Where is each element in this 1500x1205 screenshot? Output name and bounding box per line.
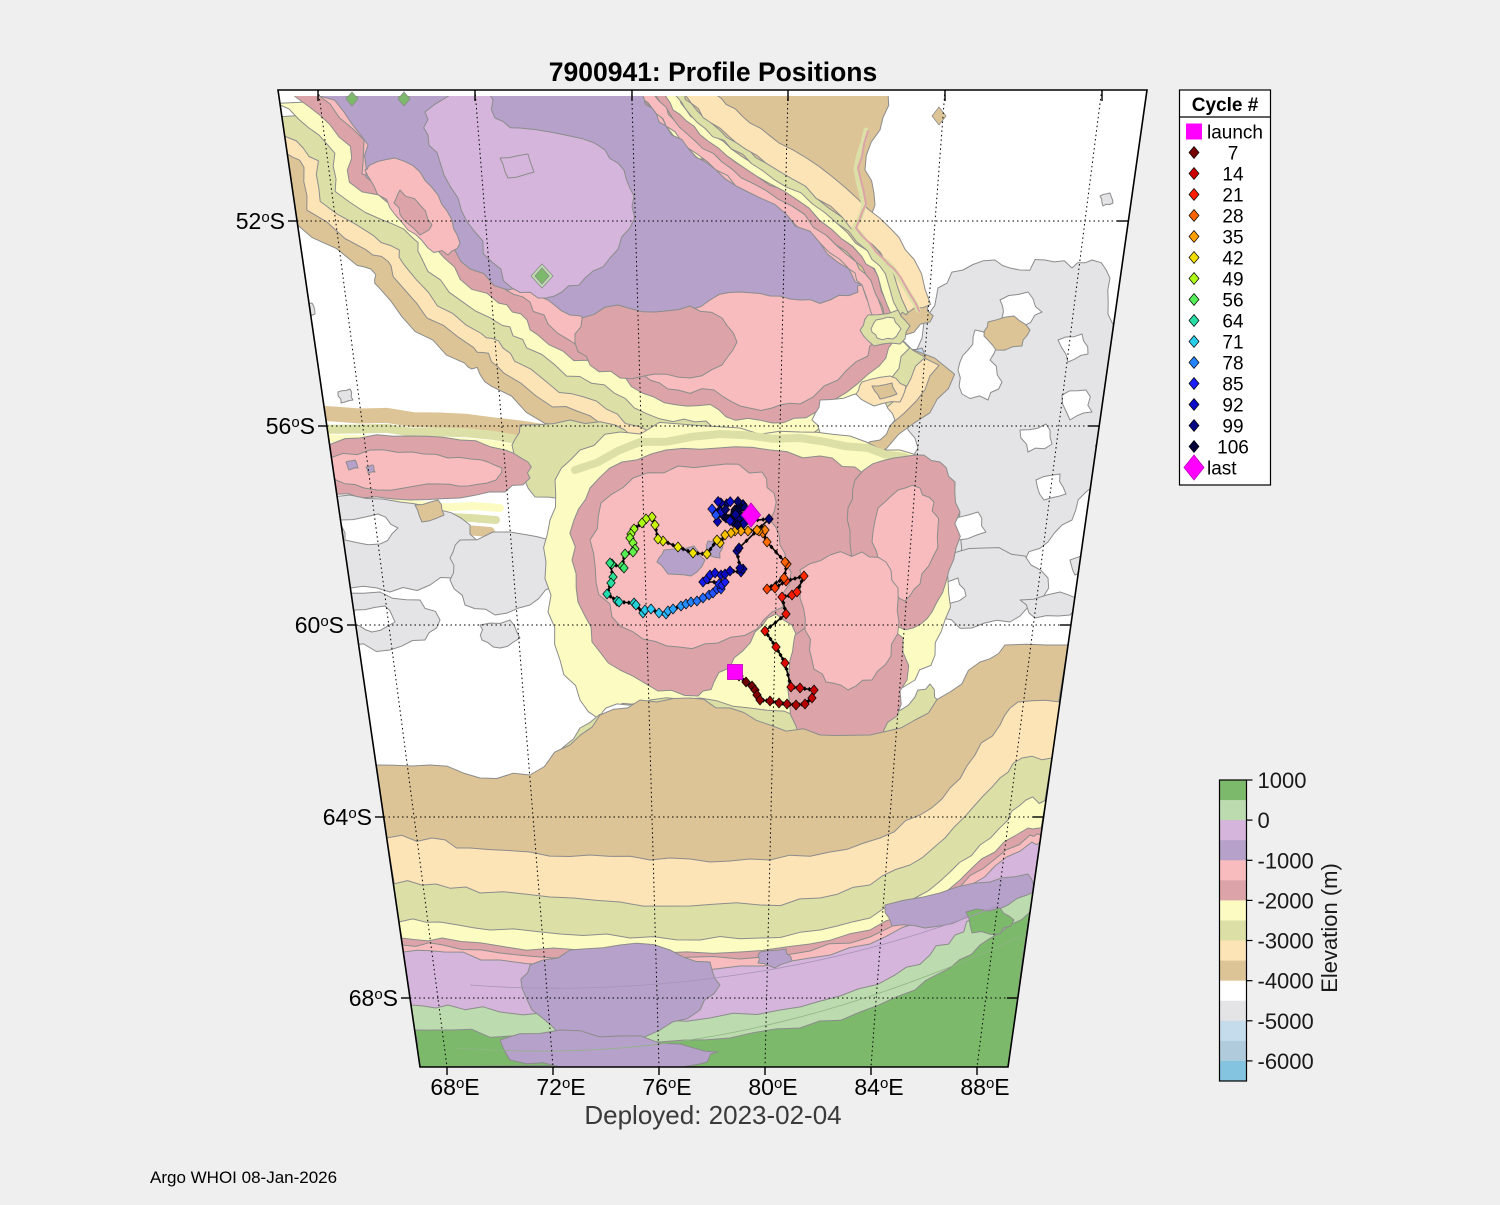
svg-text:88oE: 88oE (960, 1074, 1009, 1100)
svg-text:28: 28 (1222, 207, 1243, 228)
svg-text:Elevation (m): Elevation (m) (1317, 863, 1342, 993)
svg-text:7: 7 (1228, 144, 1239, 165)
svg-text:Deployed: 2023-02-04: Deployed: 2023-02-04 (584, 1100, 841, 1130)
svg-text:64: 64 (1222, 312, 1244, 333)
svg-text:84oE: 84oE (854, 1074, 903, 1100)
svg-text:21: 21 (1222, 186, 1243, 207)
svg-text:-4000: -4000 (1258, 969, 1314, 994)
svg-text:-6000: -6000 (1258, 1049, 1314, 1074)
svg-text:85: 85 (1222, 375, 1243, 396)
svg-text:80oE: 80oE (748, 1074, 797, 1100)
svg-text:76oE: 76oE (642, 1074, 691, 1100)
svg-text:60oS: 60oS (295, 612, 344, 638)
svg-text:7900941: Profile Positions: 7900941: Profile Positions (549, 57, 877, 87)
svg-text:-2000: -2000 (1258, 888, 1314, 913)
svg-text:56: 56 (1222, 291, 1243, 312)
svg-text:49: 49 (1222, 270, 1243, 291)
svg-text:99: 99 (1222, 417, 1243, 438)
svg-text:14: 14 (1222, 165, 1244, 186)
svg-text:35: 35 (1222, 228, 1243, 249)
svg-text:-3000: -3000 (1258, 929, 1314, 954)
svg-text:42: 42 (1222, 249, 1243, 270)
svg-text:64oS: 64oS (323, 804, 372, 830)
svg-text:Argo WHOI 08-Jan-2026: Argo WHOI 08-Jan-2026 (150, 1168, 337, 1187)
svg-text:78: 78 (1222, 354, 1243, 375)
svg-text:1000: 1000 (1258, 768, 1307, 793)
svg-text:-5000: -5000 (1258, 1009, 1314, 1034)
svg-text:72oE: 72oE (536, 1074, 585, 1100)
svg-text:56oS: 56oS (266, 413, 315, 439)
svg-text:launch: launch (1207, 123, 1263, 144)
svg-text:52oS: 52oS (236, 208, 285, 234)
svg-text:-1000: -1000 (1258, 848, 1314, 873)
svg-text:106: 106 (1217, 438, 1249, 459)
svg-text:Cycle #: Cycle # (1192, 95, 1259, 116)
svg-text:68oE: 68oE (430, 1074, 479, 1100)
svg-text:last: last (1207, 459, 1237, 480)
svg-text:0: 0 (1258, 808, 1270, 833)
svg-text:92: 92 (1222, 396, 1243, 417)
svg-text:71: 71 (1222, 333, 1243, 354)
svg-text:68oS: 68oS (349, 985, 398, 1011)
